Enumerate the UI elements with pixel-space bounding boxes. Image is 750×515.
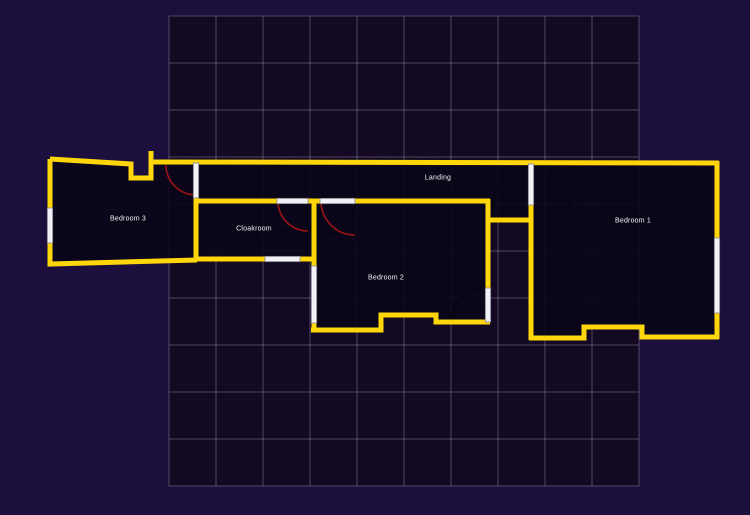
room-bedroom-3[interactable]: [50, 159, 196, 264]
floor-plan-canvas[interactable]: [0, 0, 750, 515]
window-bedroom3-left: [47, 208, 52, 243]
room-label-bedroom1: Bedroom 1: [612, 216, 654, 227]
wall-landing-top: [151, 162, 719, 163]
window-bedroom1-right: [714, 238, 719, 313]
window-bedroom2-left: [311, 266, 316, 323]
floor-plan-viewer: Bedroom 3 Cloakroom Landing Bedroom 2 Be…: [0, 0, 750, 515]
room-label-landing: Landing: [422, 173, 454, 184]
room-label-bedroom3: Bedroom 3: [107, 214, 149, 225]
room-bedroom-1[interactable]: [531, 162, 717, 338]
door-opening-cloakroom: [277, 198, 308, 203]
door-opening-bedroom2-right: [485, 288, 490, 322]
door-leaf-bedroom3: [193, 163, 198, 198]
door-opening-bedroom2: [320, 198, 355, 203]
door-opening-bedroom1: [528, 164, 533, 205]
window-cloakroom-bottom: [265, 256, 300, 261]
room-label-bedroom2: Bedroom 2: [365, 273, 407, 284]
room-bedroom-2[interactable]: [314, 201, 488, 330]
room-label-cloakroom: Cloakroom: [233, 224, 275, 235]
